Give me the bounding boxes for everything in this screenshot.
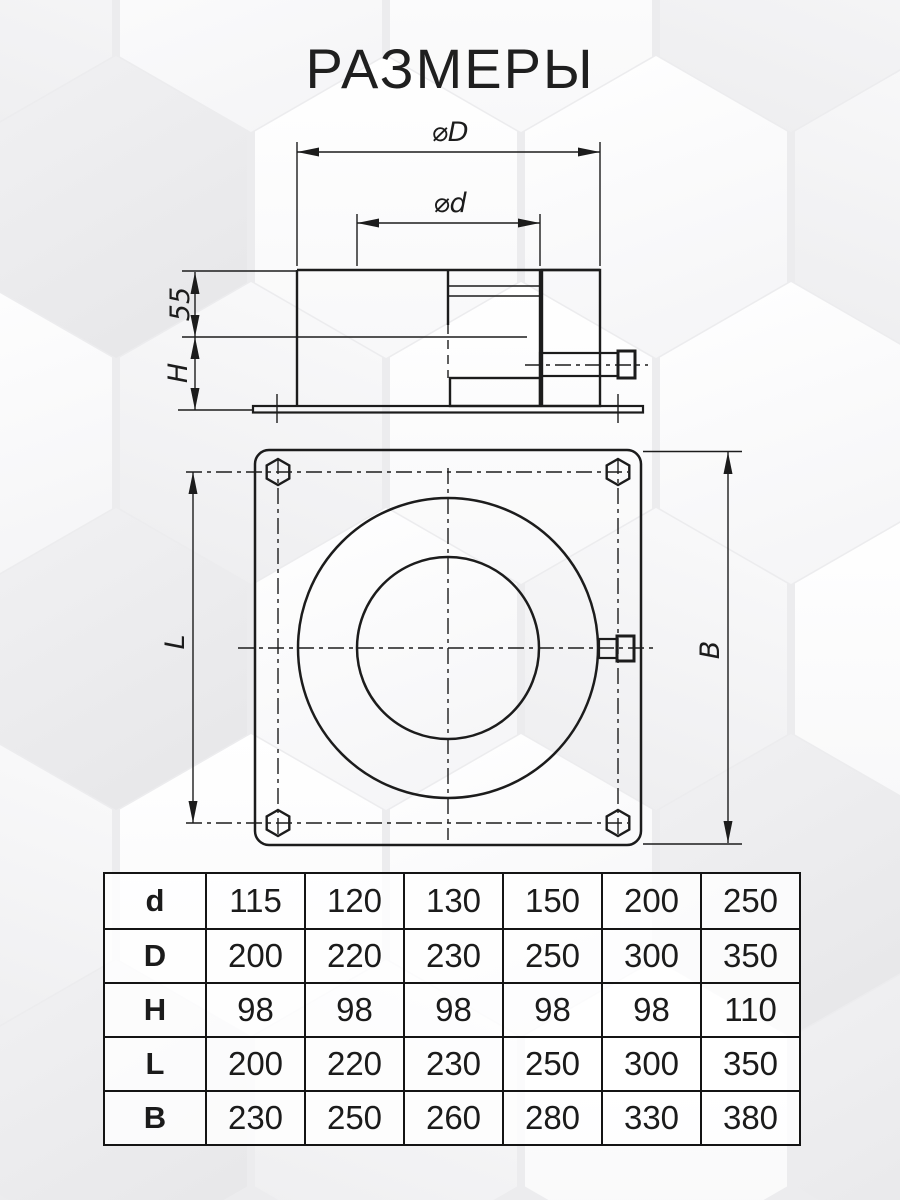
side-bolt [525, 351, 648, 378]
table-row: B 230 250 260 280 330 380 [105, 1090, 799, 1144]
table-row-label: H [105, 984, 205, 1036]
centerlines [186, 458, 656, 840]
table-cell: 200 [205, 1038, 304, 1090]
table-cell: 115 [205, 874, 304, 928]
table-cell: 230 [205, 1092, 304, 1144]
table-cell: 250 [502, 1038, 601, 1090]
table-cell: 300 [601, 930, 700, 982]
table-row: d 115 120 130 150 200 250 [105, 874, 799, 928]
table-cell: 98 [601, 984, 700, 1036]
table-cell: 110 [700, 984, 799, 1036]
table-cell: 250 [304, 1092, 403, 1144]
label-plate-side-length: B [695, 641, 726, 660]
table-row-label: d [105, 874, 205, 928]
table-cell: 260 [403, 1092, 502, 1144]
table-cell: 98 [403, 984, 502, 1036]
table-cell: 250 [502, 930, 601, 982]
table-cell: 280 [502, 1092, 601, 1144]
table-cell: 220 [304, 1038, 403, 1090]
table-cell: 98 [304, 984, 403, 1036]
table-cell: 380 [700, 1092, 799, 1144]
label-lower-section-height: H [163, 363, 194, 383]
table-cell: 200 [205, 930, 304, 982]
table-row: H 98 98 98 98 98 110 [105, 982, 799, 1036]
dimensions-table: d 115 120 130 150 200 250 D 200 220 230 … [103, 872, 801, 1146]
label-inner-diameter: ⌀d [433, 188, 467, 219]
table-row: D 200 220 230 250 300 350 [105, 928, 799, 982]
plan-view: L B [160, 450, 742, 845]
table-cell: 300 [601, 1038, 700, 1090]
table-row-label: D [105, 930, 205, 982]
table-row-label: B [105, 1092, 205, 1144]
flange-body-outline [182, 270, 600, 406]
table-cell: 350 [700, 1038, 799, 1090]
table-cell: 230 [403, 930, 502, 982]
label-bolt-spacing-length: L [160, 634, 191, 649]
table-cell: 98 [205, 984, 304, 1036]
table-cell: 250 [700, 874, 799, 928]
base-plate-side [253, 394, 643, 423]
dimension-inner-diameter: ⌀d [357, 188, 540, 266]
table-cell: 220 [304, 930, 403, 982]
dimension-plate-side: B [643, 452, 742, 845]
insulation-hatch-right [542, 270, 600, 406]
table-cell: 98 [502, 984, 601, 1036]
dimension-heights: 55 H [163, 271, 296, 410]
table-cell: 330 [601, 1092, 700, 1144]
label-outer-diameter: ⌀D [431, 117, 468, 148]
insulation-hatch-bottom [450, 378, 540, 406]
table-cell: 150 [502, 874, 601, 928]
side-section-view: ⌀D ⌀d 55 H [163, 117, 648, 423]
table-cell: 230 [403, 1038, 502, 1090]
dimension-bolt-spacing: L [160, 472, 198, 823]
label-top-section-height: 55 [165, 287, 196, 321]
table-cell: 350 [700, 930, 799, 982]
table-row-label: L [105, 1038, 205, 1090]
table-cell: 200 [601, 874, 700, 928]
table-row: L 200 220 230 250 300 350 [105, 1036, 799, 1090]
table-cell: 120 [304, 874, 403, 928]
table-cell: 130 [403, 874, 502, 928]
